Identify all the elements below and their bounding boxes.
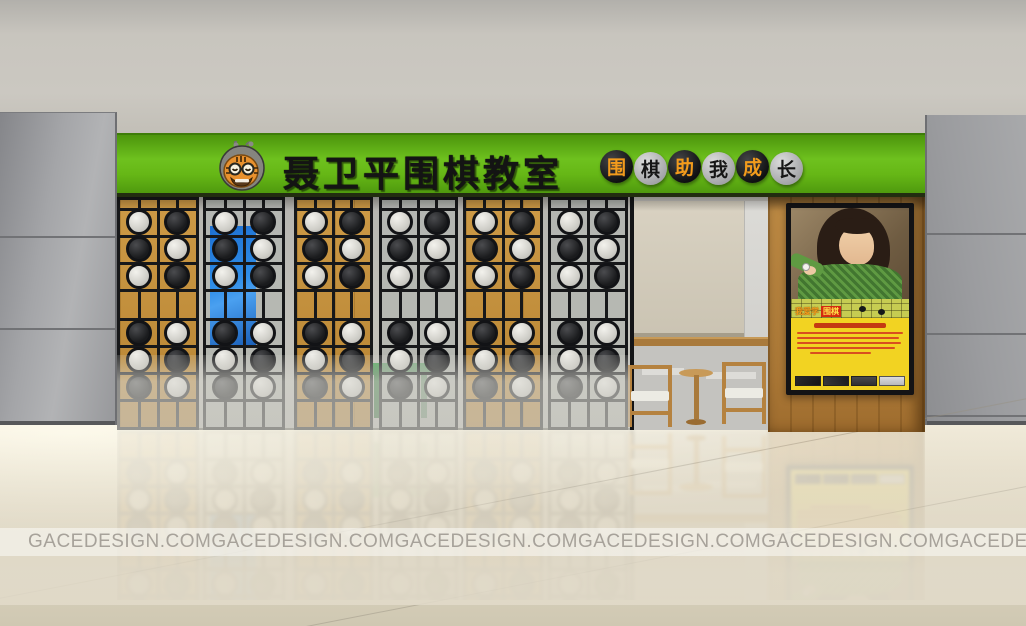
strip-photo	[795, 376, 821, 386]
black-go-stone	[387, 320, 413, 346]
white-go-stone	[802, 263, 810, 271]
slogan-stone-3: 助	[668, 150, 701, 183]
black-go-stone	[339, 209, 365, 235]
black-go-stone	[302, 236, 328, 262]
black-go-stone	[250, 263, 276, 289]
white-go-stone	[164, 320, 190, 346]
white-go-stone	[387, 209, 413, 235]
black-go-stone	[302, 320, 328, 346]
white-go-stone	[302, 209, 328, 235]
poster-photo-girl-playing-go: 我爱学 围棋	[791, 208, 909, 318]
white-go-stone	[126, 209, 152, 235]
poster-text-line	[810, 352, 871, 354]
black-go-stone	[339, 263, 365, 289]
white-go-stone	[557, 209, 583, 235]
slogan-stone-5: 成	[736, 150, 769, 183]
white-go-stone	[250, 320, 276, 346]
interior-window	[744, 201, 768, 337]
slogan-stone-1: 围	[600, 150, 633, 183]
black-go-stone	[126, 236, 152, 262]
tiger-mascot-icon	[216, 140, 268, 194]
watermark-text: GACEDESIGN.COM	[211, 531, 394, 553]
slogan-stone-6: 长	[770, 152, 803, 185]
watermark-text: GACEDESIGN.COM	[578, 531, 761, 553]
roller-blind	[634, 201, 744, 337]
strip-photo	[851, 376, 877, 386]
poster-info-block	[791, 318, 909, 374]
black-go-stone	[212, 236, 238, 262]
black-go-stone	[472, 236, 498, 262]
poster-tagline: 我爱学 围棋	[795, 306, 841, 317]
strip-photo	[823, 376, 849, 386]
tagline-prefix: 我爱学	[795, 306, 819, 317]
wall-seam	[0, 236, 115, 238]
shopfront: 我爱学 围棋	[117, 197, 925, 430]
slogan-stone-2: 棋	[634, 152, 667, 185]
black-go-stone	[164, 209, 190, 235]
poster-heading-bar	[814, 323, 886, 328]
wall-seam	[0, 328, 115, 330]
tagline-highlight: 围棋	[821, 306, 841, 317]
watermark-text: GACEDESIGN.COM	[761, 531, 944, 553]
waiting-chair	[628, 365, 672, 427]
right-wall	[925, 115, 1026, 425]
strip-photo	[879, 376, 905, 386]
poster-text-line	[797, 332, 903, 334]
wood-feature-wall: 我爱学 围棋	[768, 197, 925, 432]
black-go-stone	[387, 236, 413, 262]
entrance-bay	[630, 197, 768, 430]
white-go-stone	[339, 236, 365, 262]
black-go-stone	[509, 209, 535, 235]
white-go-stone	[424, 320, 450, 346]
classroom-title: 聂卫平围棋教室	[283, 145, 563, 197]
watermark-text: GACEDESIGN.COM	[945, 531, 1026, 553]
white-go-stone	[594, 320, 620, 346]
white-go-stone	[212, 209, 238, 235]
promo-poster: 我爱学 围棋	[786, 203, 914, 395]
black-go-stone	[557, 320, 583, 346]
poster-text-line	[797, 342, 901, 344]
sign-band: 聂卫平围棋教室 围棋助我成长	[117, 133, 925, 197]
black-go-stone	[472, 320, 498, 346]
slogan-stones: 围棋助我成长	[600, 150, 803, 183]
black-go-stone	[594, 263, 620, 289]
storefront-render: 聂卫平围棋教室 围棋助我成长	[0, 0, 1026, 626]
white-go-stone	[472, 263, 498, 289]
black-go-stone	[509, 263, 535, 289]
white-go-stone	[212, 263, 238, 289]
wood-railing	[634, 337, 768, 346]
poster-text-line	[797, 347, 895, 349]
white-go-stone	[472, 209, 498, 235]
white-go-stone	[164, 236, 190, 262]
black-go-stone	[164, 263, 190, 289]
watermark-text: GACEDESIGN.COM	[395, 531, 578, 553]
go-classroom-facade: 聂卫平围棋教室 围棋助我成长	[117, 133, 925, 430]
black-go-stone	[424, 263, 450, 289]
watermark-text: GACEDESIGN.COM	[28, 531, 211, 553]
white-go-stone	[594, 236, 620, 262]
white-go-stone	[424, 236, 450, 262]
white-go-stone	[509, 236, 535, 262]
slogan-stone-4: 我	[702, 152, 735, 185]
watermark-band: GACEDESIGN.COMGACEDESIGN.COMGACEDESIGN.C…	[0, 528, 1026, 556]
lobby-floor	[0, 425, 1026, 626]
side-table	[678, 363, 714, 427]
black-go-stone	[126, 320, 152, 346]
black-go-stone	[424, 209, 450, 235]
frosted-glass-band	[117, 355, 630, 430]
white-go-stone	[557, 263, 583, 289]
wall-seam	[927, 333, 1026, 335]
black-go-stone	[594, 209, 620, 235]
left-wall	[0, 112, 117, 425]
wall-seam	[927, 233, 1026, 235]
waiting-chair	[722, 362, 766, 424]
white-go-stone	[302, 263, 328, 289]
white-go-stone	[387, 263, 413, 289]
white-go-stone	[126, 263, 152, 289]
white-go-stone	[339, 320, 365, 346]
ceiling	[0, 0, 1026, 133]
white-go-stone	[250, 236, 276, 262]
black-go-stone	[250, 209, 276, 235]
black-go-stone	[212, 320, 238, 346]
poster-photo-strip	[791, 374, 909, 390]
poster-text-line	[797, 337, 899, 339]
black-go-stone	[557, 236, 583, 262]
white-go-stone	[509, 320, 535, 346]
